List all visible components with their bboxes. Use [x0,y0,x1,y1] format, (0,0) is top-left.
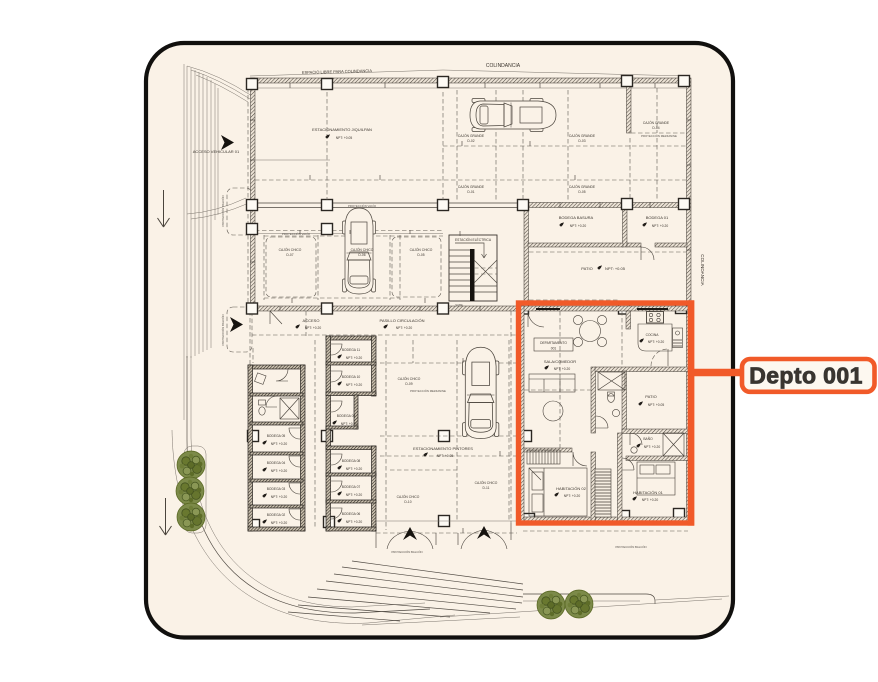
svg-text:CAJÓN GRANDE: CAJÓN GRANDE [569,184,596,189]
svg-text:D-02: D-02 [467,139,474,143]
svg-text:D-06: D-06 [358,253,365,257]
svg-text:NPT: +0.20: NPT: +0.20 [564,494,581,498]
svg-text:CAJÓN GRANDE: CAJÓN GRANDE [643,120,670,125]
svg-text:PROYECCIÓN BALCÓN: PROYECCIÓN BALCÓN [391,549,422,554]
svg-text:BODEGA 08: BODEGA 08 [342,459,361,463]
svg-text:CAJÓN CHICO: CAJÓN CHICO [475,480,498,485]
svg-text:BODEGA 06: BODEGA 06 [342,512,361,516]
svg-text:BAÑO: BAÑO [643,436,653,441]
svg-text:NPT: +0.20: NPT: +0.20 [305,326,322,330]
svg-text:PROYECCIÓN BALCÓN: PROYECCIÓN BALCÓN [615,544,646,549]
svg-text:ESTACIONAMIENTO PINTORES: ESTACIONAMIENTO PINTORES [413,446,473,451]
svg-text:NPT: +0.20: NPT: +0.20 [271,469,288,473]
svg-text:NPT: +0.20: NPT: +0.20 [652,224,669,228]
svg-text:CAJÓN CHICO: CAJÓN CHICO [351,247,374,252]
svg-text:PATIO: PATIO [645,394,656,399]
svg-text:CAJÓN GRANDE: CAJÓN GRANDE [458,133,485,138]
svg-text:BODEGA 01: BODEGA 01 [646,215,669,220]
svg-text:NPT: +0.20: NPT: +0.20 [346,467,363,471]
svg-text:PASILLO CIRCULACIÓN: PASILLO CIRCULACIÓN [379,318,424,323]
svg-text:BODEGA 11: BODEGA 11 [342,348,360,352]
svg-text:NPT: +0.05: NPT: +0.05 [605,266,626,271]
svg-text:DEPARTAMENTO: DEPARTAMENTO [540,341,567,345]
svg-text:D-10: D-10 [404,500,411,504]
svg-text:COLINDANCIA: COLINDANCIA [486,63,521,69]
svg-text:CAJÓN GRANDE: CAJÓN GRANDE [458,184,485,189]
svg-text:PROYECCIÓN MEZZANINE: PROYECCIÓN MEZZANINE [410,388,446,393]
svg-text:COCINA: COCINA [646,333,660,337]
svg-text:BODEGA 09: BODEGA 09 [337,414,356,418]
svg-text:BODEGA 05: BODEGA 05 [267,434,286,438]
svg-text:D-04: D-04 [652,126,659,130]
svg-text:ESTACIONAMIENTO JIQUILPAN: ESTACIONAMIENTO JIQUILPAN [312,127,372,132]
svg-text:BODEGA 03: BODEGA 03 [267,487,286,491]
svg-text:NPT: +0.20: NPT: +0.20 [346,356,363,360]
svg-text:D-11: D-11 [483,486,490,490]
svg-text:HABITACIÓN 01: HABITACIÓN 01 [633,490,663,495]
svg-text:NPT: +0.20: NPT: +0.20 [554,367,571,371]
svg-text:ACCESO VEHICULAR 01: ACCESO VEHICULAR 01 [193,149,240,154]
svg-text:ACCESO: ACCESO [303,318,320,323]
svg-text:D-05: D-05 [417,253,424,257]
svg-text:COLINDANCIA: COLINDANCIA [700,254,705,286]
svg-text:NPT: +0.05: NPT: +0.05 [648,403,665,407]
svg-text:D-03: D-03 [578,139,585,143]
svg-text:CAJÓN CHICO: CAJÓN CHICO [398,376,421,381]
svg-text:D-05: D-05 [578,190,585,194]
svg-text:PATIO: PATIO [581,266,592,271]
svg-text:NPT: +0.20: NPT: +0.20 [271,442,288,446]
svg-text:PROYECCIÓN VACÍO: PROYECCIÓN VACÍO [348,203,377,208]
svg-text:NPT: +0.20: NPT: +0.20 [644,445,661,449]
svg-text:Depto 001: Depto 001 [749,363,863,389]
svg-text:SUBE: SUBE [455,303,463,307]
svg-text:NPT: +0.20: NPT: +0.20 [346,493,363,497]
svg-text:NPT: +0.20: NPT: +0.20 [271,521,288,525]
svg-text:NPT: +0.20: NPT: +0.20 [648,340,665,344]
svg-text:ESTACIÓN ELÉCTRICA: ESTACIÓN ELÉCTRICA [455,237,492,242]
svg-text:BODEGA 10: BODEGA 10 [342,375,361,379]
svg-text:HABITACIÓN 02: HABITACIÓN 02 [556,486,586,491]
svg-text:BODEGA 02: BODEGA 02 [267,513,286,517]
svg-text:NPT: +0.20: NPT: +0.20 [570,224,587,228]
svg-text:BODEGA 07: BODEGA 07 [342,485,361,489]
svg-text:D-01: D-01 [467,190,474,194]
svg-text:NPT: +0.05: NPT: +0.05 [336,136,353,140]
svg-text:NPT: +0.20: NPT: +0.20 [346,383,363,387]
svg-text:001: 001 [551,347,557,351]
svg-text:PROYECCIÓN VACÍO: PROYECCIÓN VACÍO [282,231,311,236]
svg-text:NPT: +0.20: NPT: +0.20 [341,422,358,426]
svg-text:NPT: +0.20: NPT: +0.20 [271,495,288,499]
svg-text:NPT: +0.20: NPT: +0.20 [642,498,659,502]
svg-text:BODEGA BASURA: BODEGA BASURA [559,215,594,220]
svg-text:CAJÓN CHICO: CAJÓN CHICO [397,494,420,499]
svg-text:CAJÓN CHICO: CAJÓN CHICO [279,247,302,252]
svg-text:NPT: +0.20: NPT: +0.20 [346,520,363,524]
svg-text:NPT: +0.20: NPT: +0.20 [396,326,413,330]
svg-text:NPT: +0.05: NPT: +0.05 [437,454,454,458]
svg-text:PROYECCIÓN BALCÓN: PROYECCIÓN BALCÓN [220,195,225,226]
svg-text:CAJÓN CHICO: CAJÓN CHICO [410,247,433,252]
svg-text:D-09: D-09 [405,382,412,386]
svg-text:PROYECCIÓN MEZZANINE: PROYECCIÓN MEZZANINE [641,133,677,138]
svg-text:BODEGA 04: BODEGA 04 [267,461,286,465]
svg-text:D-07: D-07 [286,253,293,257]
svg-text:CAJÓN GRANDE: CAJÓN GRANDE [569,133,596,138]
svg-text:PROYECCIÓN BALCÓN: PROYECCIÓN BALCÓN [220,314,225,345]
